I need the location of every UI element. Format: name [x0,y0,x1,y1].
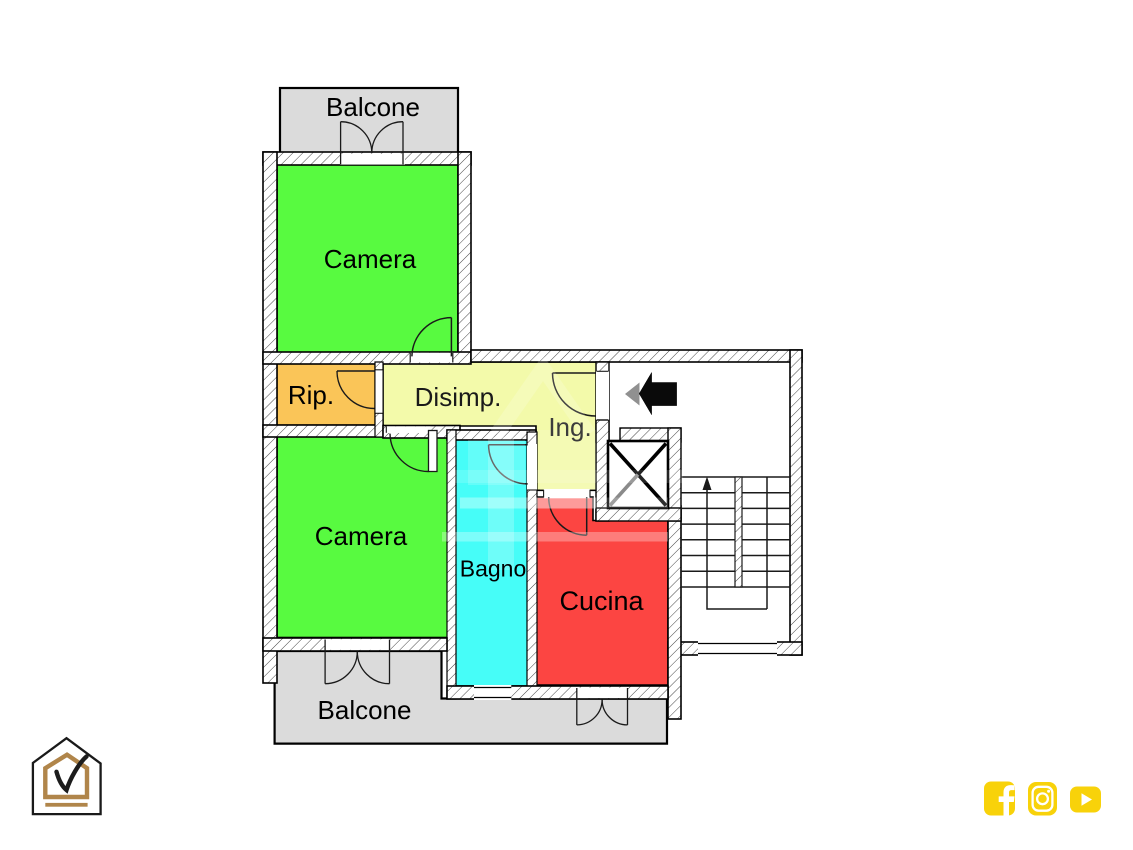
svg-text:Camera: Camera [324,244,417,274]
svg-text:Rip.: Rip. [288,380,334,410]
svg-text:Camera: Camera [315,521,408,551]
svg-text:Disimp.: Disimp. [415,382,502,412]
svg-text:Balcone: Balcone [318,695,412,725]
svg-text:Bagno: Bagno [460,556,527,582]
svg-text:Balcone: Balcone [326,92,420,122]
svg-text:Ing.: Ing. [548,412,591,442]
svg-text:Cucina: Cucina [559,586,644,616]
